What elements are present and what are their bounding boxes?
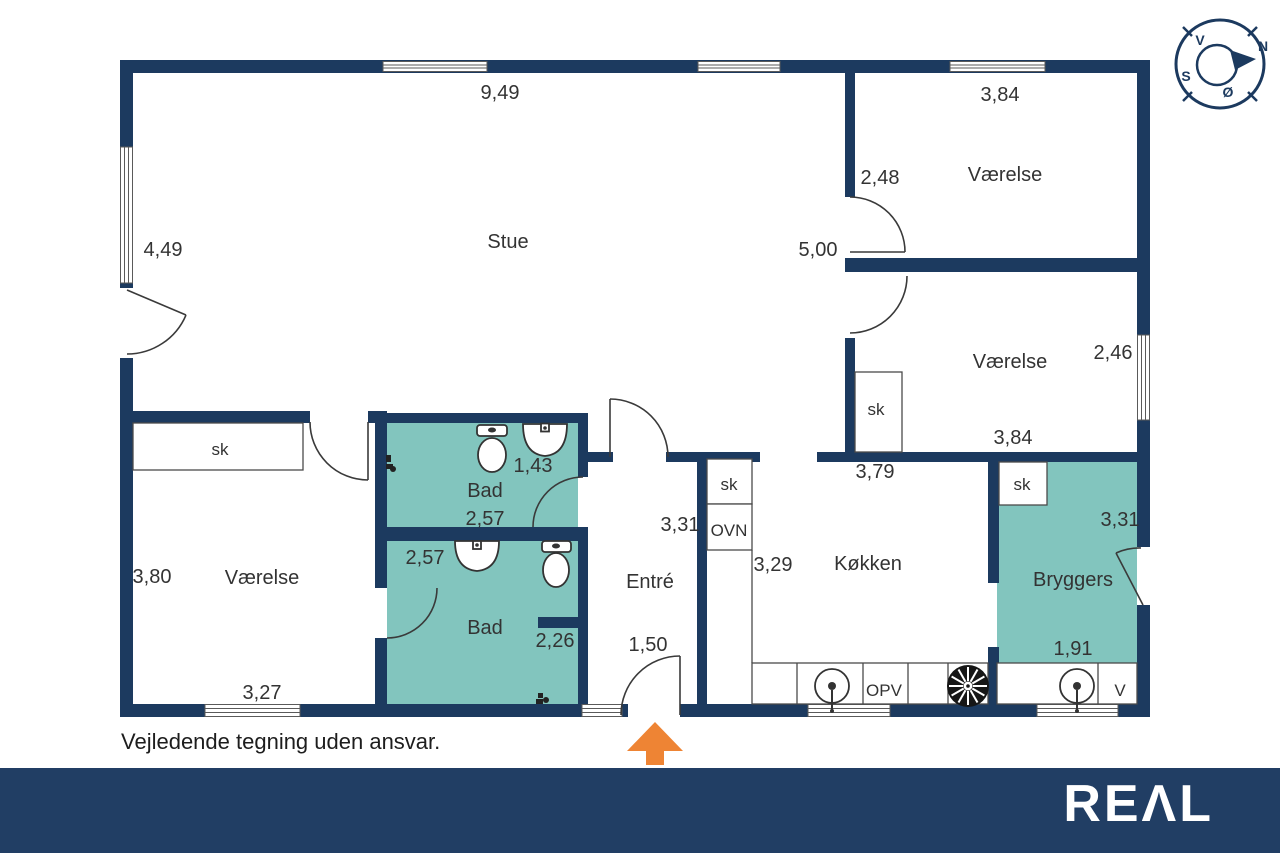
dim-stue-width: 9,49 (481, 82, 520, 104)
dim-vaerelse-mr-width: 3,84 (994, 427, 1033, 449)
dim-vaerelse-bl-height: 3,80 (133, 566, 172, 588)
dim-koekken-width: 3,79 (856, 461, 895, 483)
brand-logo: REΛL (1063, 774, 1214, 834)
room-label-bad-2: Bad (467, 617, 503, 639)
dim-vaerelse-mr-height: 2,46 (1094, 342, 1133, 364)
dim-bryggers-width: 1,91 (1054, 638, 1093, 660)
toilet-icon (542, 541, 571, 587)
room-label-stue: Stue (487, 231, 528, 253)
dim-stue-left-height: 4,49 (144, 239, 183, 261)
dim-vaerelse-tr-height: 2,48 (861, 167, 900, 189)
door-arc-vaerelse-topright (850, 197, 905, 252)
compass-letter-s: S (1181, 68, 1190, 84)
disclaimer-text: Vejledende tegning uden ansvar. (121, 729, 440, 755)
dim-entre-width: 1,50 (629, 634, 668, 656)
room-label-vaerelse-bottomleft: Værelse (225, 567, 299, 589)
floorplan-page: VNSØ StueVærelseVærelseVærelseBadBadEntr… (0, 0, 1280, 853)
door-arc-entrance (621, 656, 680, 715)
footer-bar: REΛL (0, 768, 1280, 853)
closet-label-bryggers: sk (1014, 475, 1032, 494)
dim-vaerelse-bl-width: 3,27 (243, 682, 282, 704)
compass-rose: VNSØ (1176, 20, 1268, 108)
door-arc-stue-entre (610, 399, 668, 457)
door-arc-vaerelse-bottomleft (310, 422, 368, 480)
room-label-entre: Entré (626, 571, 674, 593)
compass-letter-v: V (1195, 32, 1205, 48)
room-label-vaerelse-midright: Værelse (973, 351, 1047, 373)
toilet-icon (477, 425, 507, 472)
dishwasher-label: OPV (866, 681, 903, 700)
door-arc-terrace (127, 315, 186, 354)
closet-label-vaerelse-bl: sk (212, 440, 230, 459)
walls (120, 60, 1150, 717)
dim-entre-height: 3,31 (661, 514, 700, 536)
room-label-koekken: Køkken (834, 553, 902, 575)
washer-label: V (1114, 681, 1126, 700)
closet-label-vaerelse-mr: sk (868, 400, 886, 419)
floorplan-drawing: VNSØ StueVærelseVærelseVærelseBadBadEntr… (0, 0, 1280, 768)
dim-vaerelse-tr-width: 3,84 (981, 84, 1020, 106)
dim-bad2-height: 2,26 (536, 630, 575, 652)
room-label-vaerelse-topright: Værelse (968, 164, 1042, 186)
closet-label-entre: sk (721, 475, 739, 494)
stove-icon (947, 665, 989, 707)
compass-needle-icon (1230, 50, 1256, 70)
dim-bad1-height: 1,43 (514, 455, 553, 477)
dim-koekken-height: 3,29 (754, 554, 793, 576)
dim-bad1-width: 2,57 (466, 508, 505, 530)
compass-letter-oe: Ø (1223, 84, 1234, 100)
door-arc-vaerelse-midright (850, 276, 907, 333)
compass-letter-n: N (1258, 38, 1268, 54)
dim-stue-right-height: 5,00 (799, 239, 838, 261)
room-label-bad-1: Bad (467, 480, 503, 502)
dim-bryggers-height: 3,31 (1101, 509, 1140, 531)
labels-layer: StueVærelseVærelseVærelseBadBadEntréKøkk… (133, 82, 1140, 704)
windows (121, 62, 1150, 717)
entrance-arrow-icon (627, 722, 683, 765)
dim-bad2-width: 2,57 (406, 547, 445, 569)
oven-label: OVN (711, 521, 748, 540)
room-label-bryggers: Bryggers (1033, 569, 1113, 591)
